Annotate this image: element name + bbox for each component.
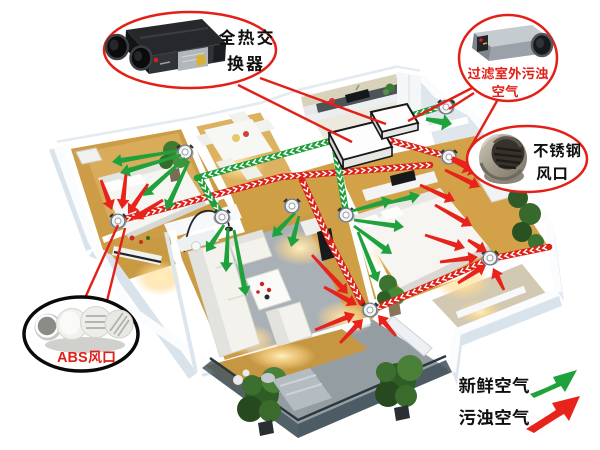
svg-text:ABS: ABS bbox=[57, 350, 88, 366]
